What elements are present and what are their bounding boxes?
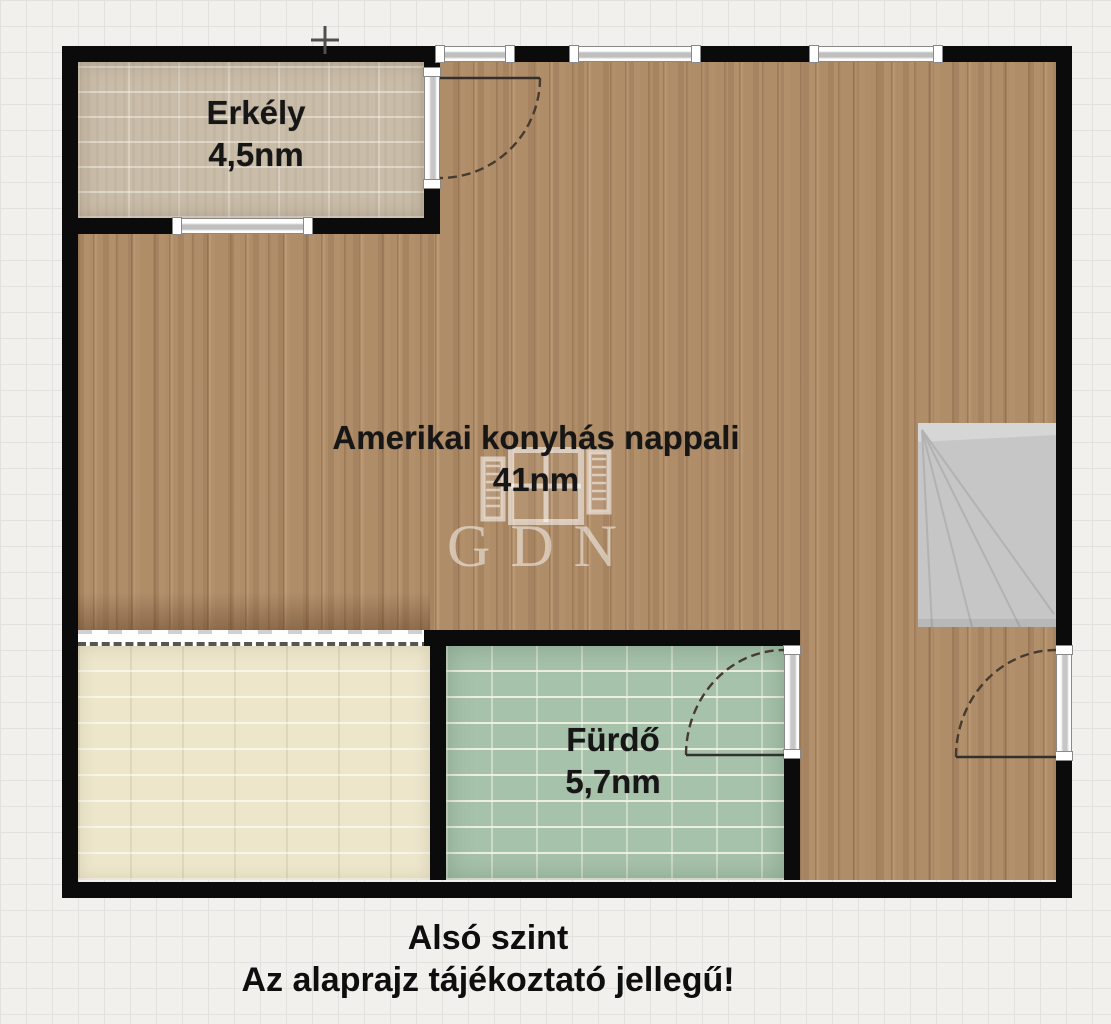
window-top-3 bbox=[810, 46, 942, 62]
balcony-area: 4,5nm bbox=[206, 134, 305, 176]
bathroom-label: Fürdő 5,7nm bbox=[565, 719, 660, 803]
wall-right-upper bbox=[1056, 46, 1072, 646]
plan-disclaimer: Az alaprajz tájékoztató jellegű! bbox=[241, 959, 734, 1001]
plan-caption: Alsó szint Az alaprajz tájékoztató jelle… bbox=[241, 917, 734, 1001]
balcony-name: Erkély bbox=[206, 92, 305, 134]
plan-level-title: Alsó szint bbox=[241, 917, 734, 959]
living-room-area: 41nm bbox=[332, 459, 739, 501]
door-entrance-panel bbox=[1056, 646, 1072, 760]
living-room-label: Amerikai konyhás nappali 41nm bbox=[332, 417, 739, 501]
wall-room-divider bbox=[430, 630, 446, 880]
window-top-2 bbox=[570, 46, 700, 62]
lower-room-floor bbox=[78, 646, 430, 880]
bathroom-area: 5,7nm bbox=[565, 761, 660, 803]
floorplan-page: { "rooms": { "balcony": { "name": "Erkél… bbox=[0, 0, 1111, 1024]
window-balcony bbox=[173, 218, 312, 234]
window-top-1 bbox=[436, 46, 514, 62]
wall-right-lower bbox=[1056, 760, 1072, 898]
balcony-label: Erkély 4,5nm bbox=[206, 92, 305, 176]
wall-bottom bbox=[62, 882, 1072, 898]
door-bathroom-panel bbox=[784, 646, 800, 758]
gallery-edge-line bbox=[78, 630, 430, 646]
wall-left bbox=[62, 46, 78, 898]
wall-bathroom-right-lower bbox=[784, 758, 800, 880]
wall-bathroom-top bbox=[424, 630, 800, 646]
door-balcony-panel bbox=[424, 68, 440, 188]
bathroom-name: Fürdő bbox=[565, 719, 660, 761]
gallery-shadow bbox=[78, 592, 430, 630]
living-room-name: Amerikai konyhás nappali bbox=[332, 417, 739, 459]
